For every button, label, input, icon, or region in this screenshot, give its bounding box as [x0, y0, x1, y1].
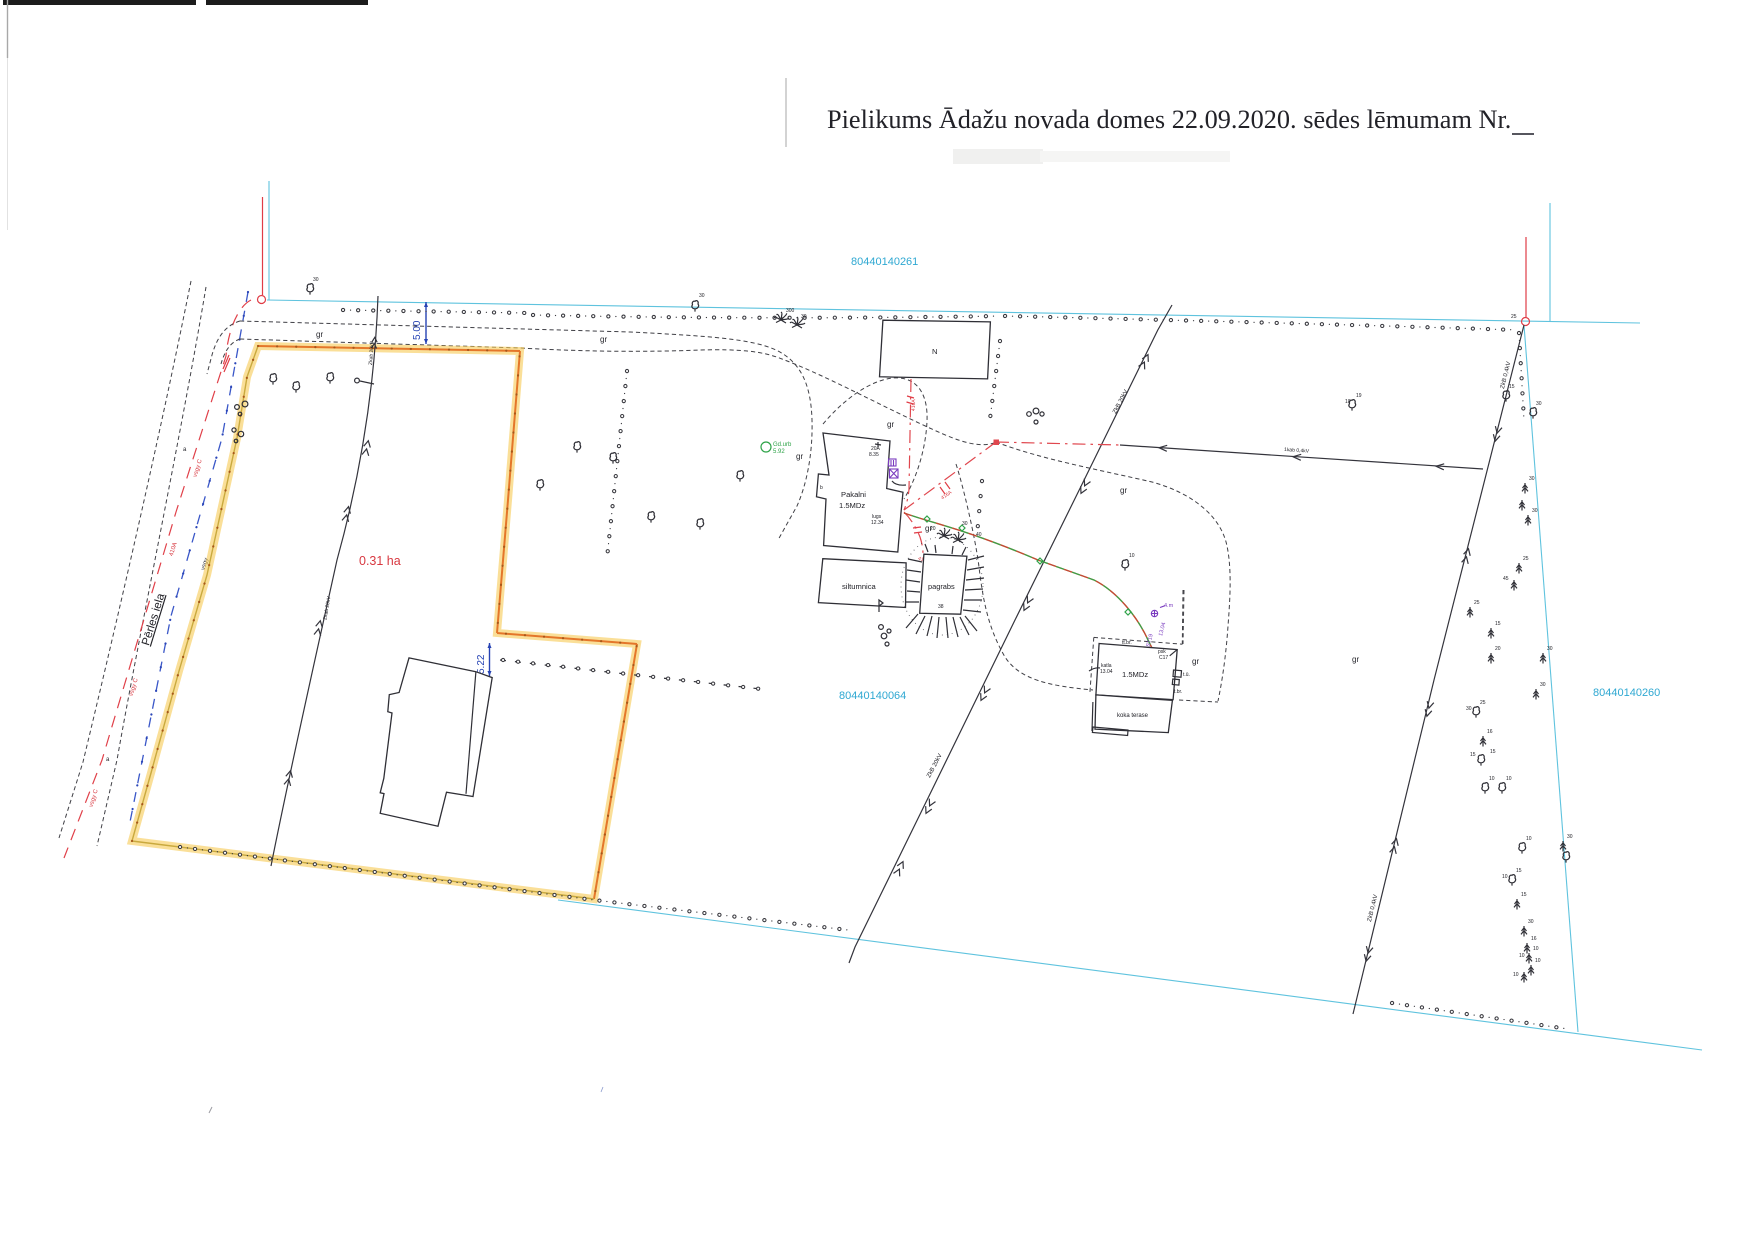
svg-text:13.04: 13.04 [1100, 669, 1113, 675]
svg-text:15: 15 [1470, 752, 1476, 758]
svg-text:30: 30 [1466, 706, 1472, 712]
svg-text:10: 10 [1502, 874, 1508, 880]
svg-text:10: 10 [1535, 958, 1541, 964]
svg-text:30: 30 [1532, 508, 1538, 514]
svg-text:300: 300 [786, 308, 795, 314]
svg-text:15: 15 [1521, 892, 1527, 898]
svg-text:40: 40 [976, 532, 982, 538]
svg-text:30: 30 [801, 314, 807, 320]
svg-text:koka terase: koka terase [1117, 713, 1149, 719]
svg-text:gr: gr [796, 452, 803, 461]
svg-text:gr: gr [887, 420, 894, 429]
svg-text:psk: psk [1158, 649, 1166, 655]
svg-text:80440140261: 80440140261 [851, 256, 918, 268]
svg-text:gr: gr [1192, 657, 1199, 666]
svg-text:gr: gr [1120, 486, 1127, 495]
svg-text:Pakalni: Pakalni [841, 490, 866, 499]
svg-text:Gd.urb: Gd.urb [773, 442, 792, 448]
svg-text:80440140064: 80440140064 [839, 690, 906, 702]
svg-text:N: N [932, 347, 937, 356]
svg-text:10: 10 [1519, 953, 1525, 959]
svg-text:pagrabs: pagrabs [928, 582, 955, 591]
svg-text:8.35: 8.35 [869, 452, 879, 458]
svg-text:gr: gr [316, 330, 323, 339]
svg-text:10: 10 [1345, 399, 1351, 405]
svg-text:16: 16 [1487, 729, 1493, 735]
svg-text:30: 30 [1567, 834, 1573, 840]
svg-text:20: 20 [1495, 646, 1501, 652]
svg-text:25: 25 [1511, 314, 1517, 320]
svg-text:12.34: 12.34 [871, 520, 884, 526]
svg-text:19: 19 [1356, 393, 1362, 399]
svg-text:Pielikums Ādažu novada domes 2: Pielikums Ādažu novada domes 22.09.2020.… [827, 105, 1511, 134]
svg-text:10: 10 [1533, 946, 1539, 952]
svg-text:25: 25 [1523, 556, 1529, 562]
svg-text:gr: gr [600, 335, 607, 344]
svg-text:0.31 ha: 0.31 ha [359, 554, 401, 568]
svg-text:5.92: 5.92 [773, 449, 785, 455]
svg-text:10: 10 [1129, 553, 1135, 559]
svg-text:15: 15 [1509, 384, 1515, 390]
svg-text:gr: gr [1352, 655, 1359, 664]
svg-text:siltumnica: siltumnica [842, 582, 877, 591]
svg-text:t.br.: t.br. [1174, 689, 1182, 695]
svg-text:416A: 416A [911, 399, 917, 412]
svg-text:15: 15 [1495, 621, 1501, 627]
svg-text:10: 10 [1506, 776, 1512, 782]
svg-text:10: 10 [1489, 776, 1495, 782]
svg-text:30: 30 [1547, 646, 1553, 652]
svg-text:30: 30 [313, 277, 319, 283]
svg-text:15: 15 [1490, 749, 1496, 755]
svg-text:1.5MDz: 1.5MDz [1122, 670, 1148, 679]
svg-text:b: b [820, 485, 823, 491]
svg-text:4.m: 4.m [1164, 603, 1174, 609]
svg-text:5.22: 5.22 [476, 654, 487, 674]
svg-text:20: 20 [930, 526, 936, 532]
svg-text:38: 38 [938, 604, 944, 610]
svg-text:30: 30 [1529, 476, 1535, 482]
svg-text:10: 10 [1526, 836, 1532, 842]
svg-text:80440140260: 80440140260 [1593, 687, 1660, 699]
svg-text:10: 10 [1513, 972, 1519, 978]
svg-text:25: 25 [1480, 700, 1486, 706]
svg-text:30: 30 [1536, 401, 1542, 407]
svg-text:30: 30 [1528, 919, 1534, 925]
svg-text:1.5MDz: 1.5MDz [839, 501, 865, 510]
svg-text:45: 45 [1503, 576, 1509, 582]
svg-text:C17: C17 [1159, 655, 1168, 661]
svg-text:30: 30 [1540, 682, 1546, 688]
svg-text:5.00: 5.00 [412, 320, 423, 340]
svg-text:30: 30 [962, 521, 968, 527]
svg-text:tt.br.: tt.br. [1122, 640, 1132, 646]
svg-text:16: 16 [1531, 936, 1537, 942]
svg-text:25: 25 [1474, 600, 1480, 606]
svg-text:30: 30 [699, 293, 705, 299]
svg-text:t.ū.: t.ū. [1183, 672, 1190, 678]
svg-text:15: 15 [1516, 868, 1522, 874]
